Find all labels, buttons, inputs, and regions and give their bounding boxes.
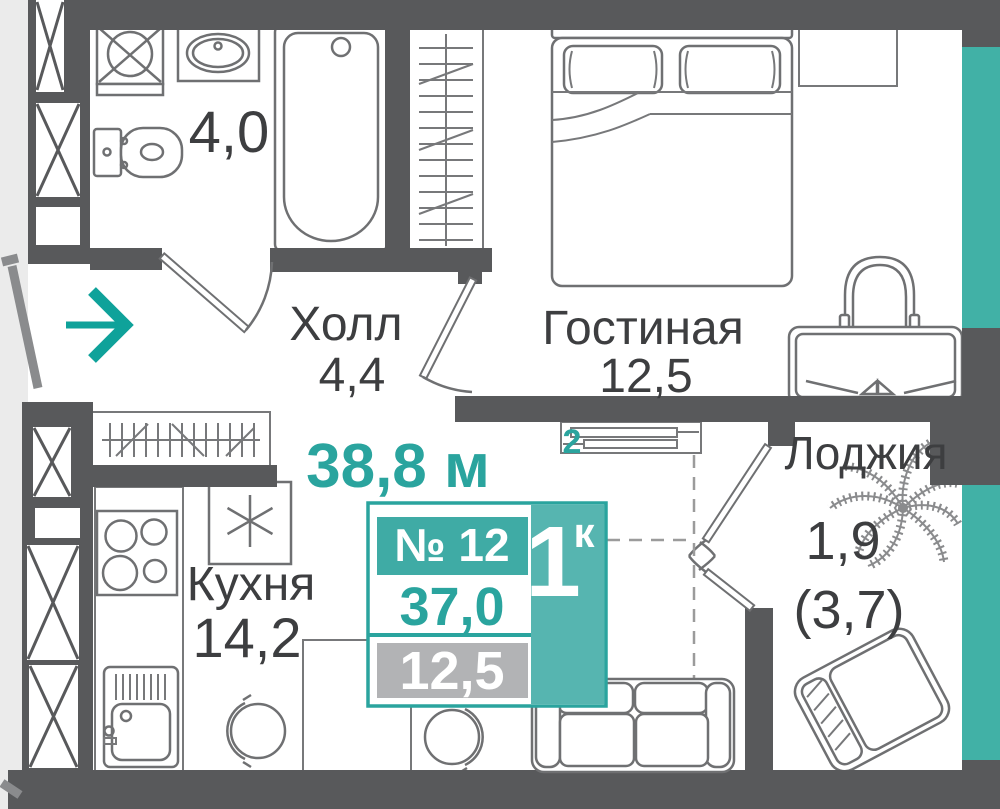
desk-chair-icon — [840, 257, 919, 331]
hall-area-label: 4,4 — [319, 349, 386, 402]
washing-machine-icon — [97, 26, 163, 95]
dressing-table-icon — [789, 327, 962, 404]
card-divider — [368, 633, 531, 637]
area-no-loggia-label: 37,0 — [399, 577, 504, 637]
window-strip — [962, 47, 1000, 328]
kitchen-area-label: 14,2 — [193, 606, 302, 669]
floor-plan-page: 38,8 м 2 № 12 37,0 12,5 1 к 4,0 Холл 4,4… — [0, 0, 1000, 809]
hall-name-label: Холл — [289, 298, 402, 351]
loggia-area-label: 1,9 — [805, 511, 880, 571]
bathroom-area-label: 4,0 — [189, 100, 270, 165]
rooms-count-label: 1 — [525, 506, 581, 618]
bathtub-icon — [275, 24, 387, 252]
fridge-icon — [209, 482, 291, 564]
kitchen-sink-icon — [104, 667, 178, 767]
total-area-superscript: 2 — [563, 423, 582, 461]
floor-plan: 38,8 м 2 № 12 37,0 12,5 1 к 4,0 Холл 4,4… — [0, 0, 1000, 809]
apartment-number-label: № 12 — [394, 519, 509, 571]
loggia-area-full-label: (3,7) — [793, 580, 904, 640]
living-room-area-label: 12,5 — [599, 350, 692, 403]
living-area-label: 12,5 — [399, 641, 504, 701]
loggia-name-label: Лоджия — [785, 427, 948, 479]
stove-icon — [97, 511, 177, 595]
total-area-label: 38,8 м — [306, 432, 490, 501]
rooms-count-superscript: к — [573, 509, 595, 556]
living-room-name-label: Гостиная — [542, 302, 743, 355]
double-bed-icon — [552, 23, 792, 286]
kitchen-name-label: Кухня — [187, 558, 315, 611]
bathroom-sink-icon — [178, 26, 259, 81]
toilet-icon — [94, 128, 182, 177]
window-strip — [962, 485, 1000, 760]
